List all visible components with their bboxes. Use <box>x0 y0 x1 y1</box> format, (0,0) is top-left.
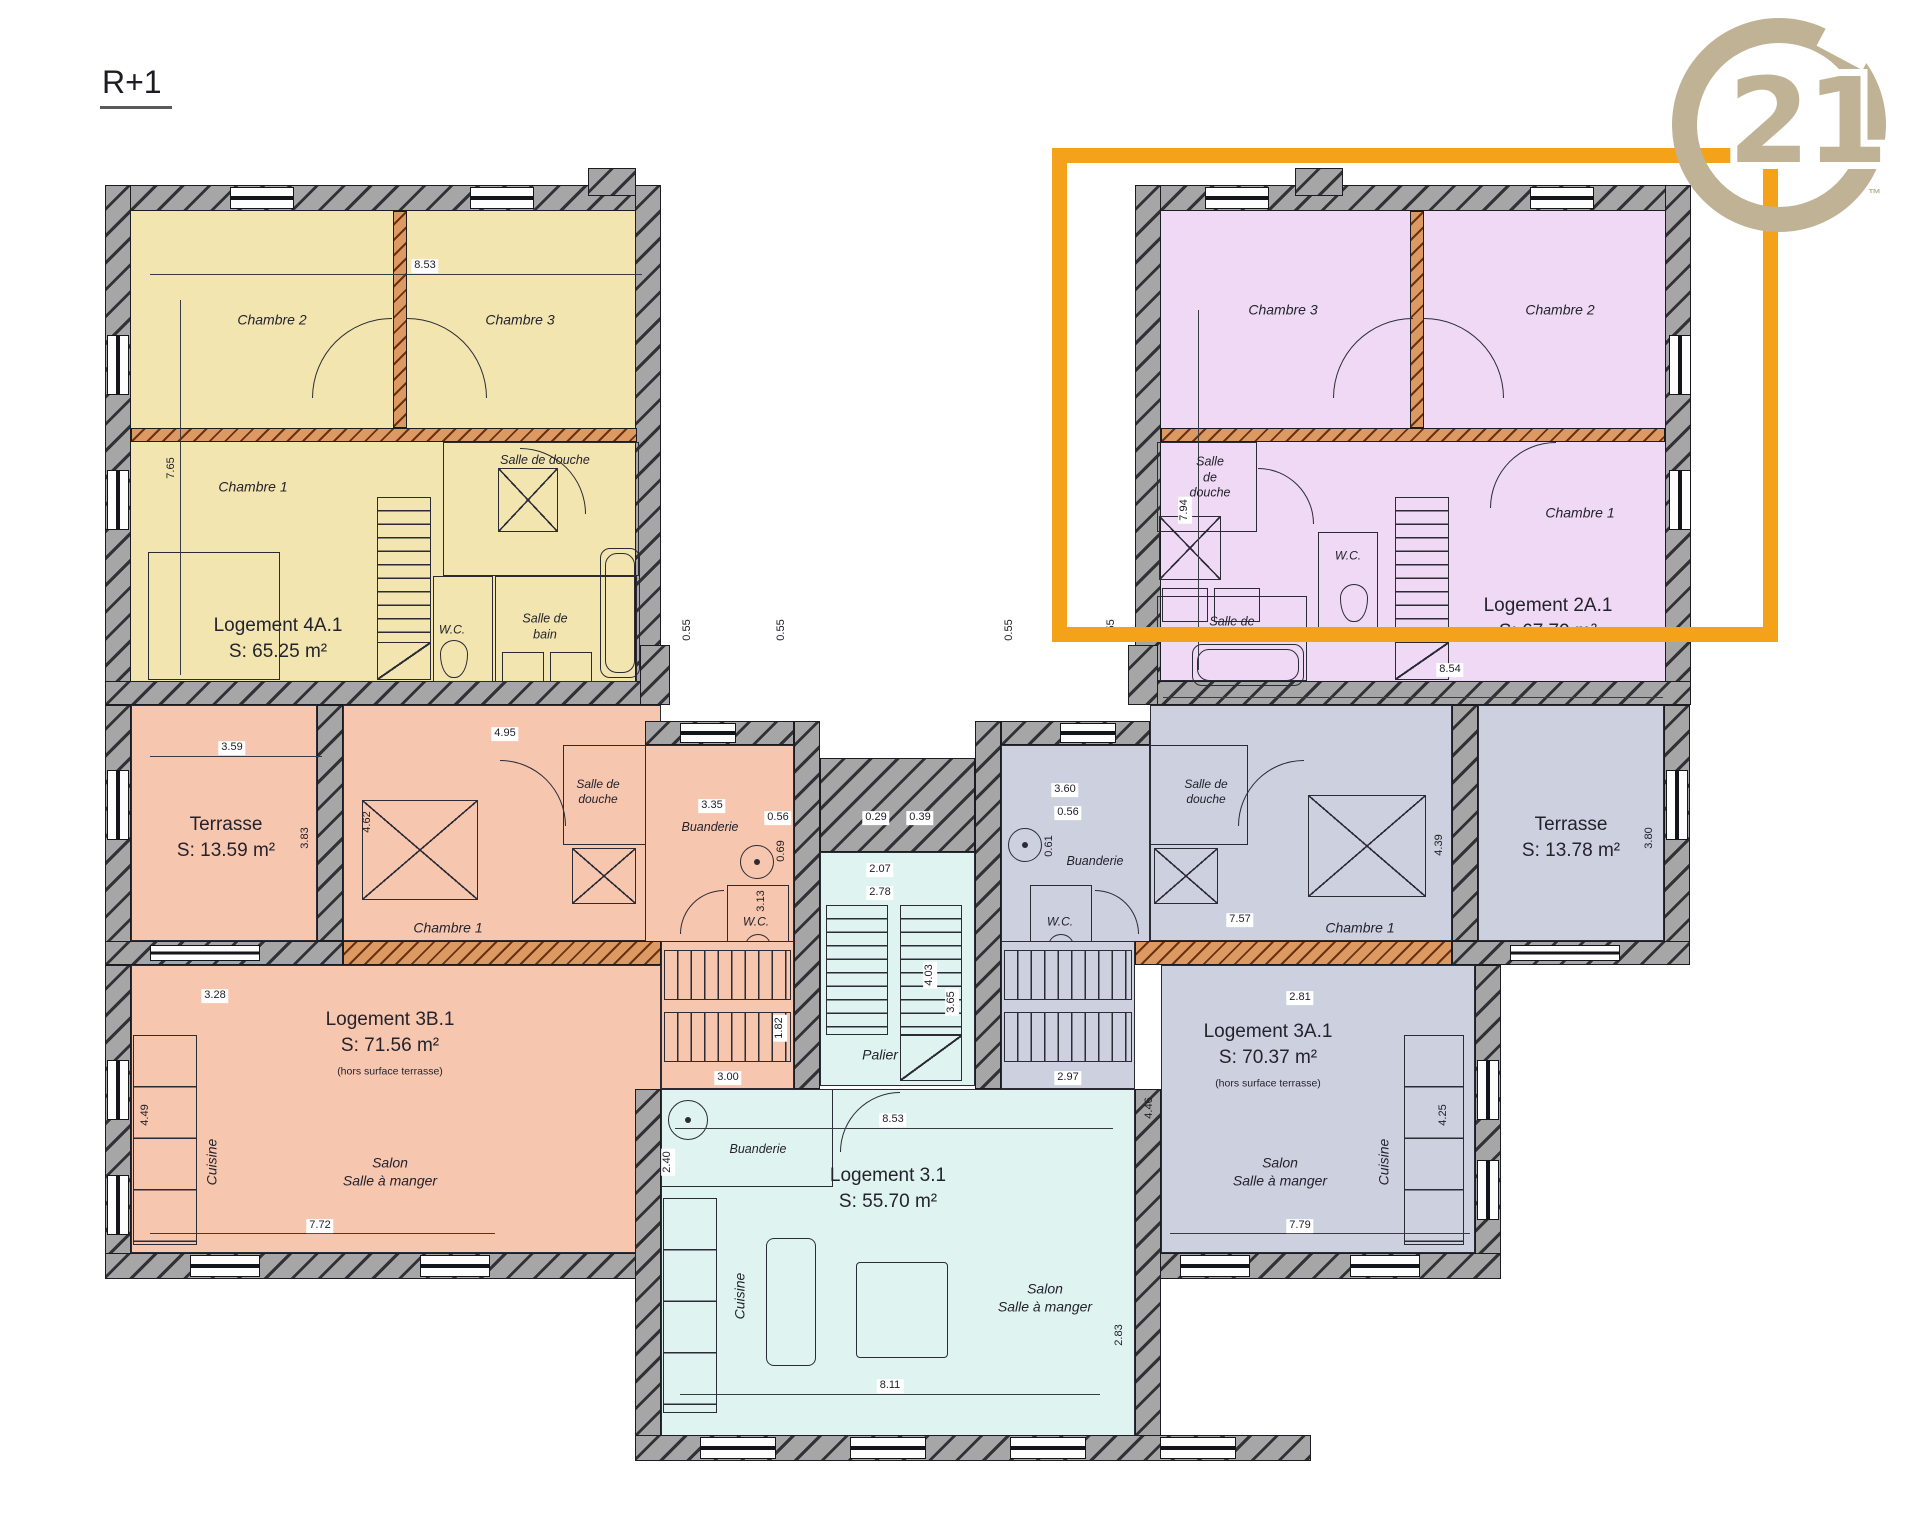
dimension: 8.11 <box>877 1379 904 1393</box>
washing-machine <box>1008 828 1042 862</box>
window <box>470 187 534 209</box>
room-label: Chambre 1 <box>413 919 482 937</box>
window <box>1477 1160 1499 1220</box>
dim-line <box>150 756 322 757</box>
staircase-fan <box>900 1035 962 1081</box>
staircase <box>1004 1012 1132 1062</box>
room-label: W.C. <box>439 623 465 638</box>
window <box>107 770 129 840</box>
dimension: 0.61 <box>1043 835 1057 856</box>
room-label: Cuisine <box>731 1273 749 1320</box>
dim-line <box>150 1233 495 1234</box>
dimension: 4.39 <box>1433 834 1447 855</box>
dimension: 2.40 <box>661 1148 675 1175</box>
window <box>1180 1255 1250 1277</box>
apartment-area: S: 65.25 m² <box>229 640 327 664</box>
dim-line <box>1163 697 1663 698</box>
wall <box>105 185 661 211</box>
room-label: Palier <box>862 1046 898 1064</box>
staircase <box>664 1012 791 1062</box>
staircase <box>377 497 431 643</box>
window <box>190 1255 260 1277</box>
room-label: Salon Salle à manger <box>343 1155 437 1190</box>
dim-line <box>680 1394 1100 1395</box>
dimension: 3.00 <box>714 1071 741 1085</box>
wall <box>1475 965 1501 1279</box>
dimension: 0.55 <box>775 619 789 640</box>
highlight-box-2a1 <box>1052 148 1778 642</box>
wall <box>105 1253 661 1279</box>
window <box>107 335 129 395</box>
apartment-area: S: 55.70 m² <box>839 1190 937 1214</box>
dimension: 2.81 <box>1286 991 1313 1005</box>
window <box>1666 770 1688 840</box>
kitchen-counter <box>1404 1035 1464 1245</box>
dim-line <box>150 274 642 275</box>
dimension: 0.56 <box>1054 806 1081 820</box>
wall <box>1452 705 1478 941</box>
logo-trademark: ™ <box>1868 186 1881 201</box>
dimension: 3.83 <box>299 827 313 848</box>
dimension: 3.60 <box>1051 783 1078 797</box>
window <box>850 1437 926 1459</box>
room-label: W.C. <box>1047 915 1073 930</box>
room-label: W.C. <box>743 915 769 930</box>
staircase <box>826 905 888 1035</box>
room-label: Buanderie <box>682 820 739 836</box>
dimension: 4.03 <box>923 961 937 988</box>
staircase-fan <box>377 642 431 680</box>
apartment-title: Logement 4A.1 <box>214 614 343 638</box>
terrasse-title: Terrasse <box>190 813 263 837</box>
dimension: 3.59 <box>218 741 245 755</box>
apartment-note: (hors surface terrasse) <box>337 1065 443 1078</box>
floor-label: R+1 <box>100 64 172 109</box>
entrance-wall-block <box>820 758 975 852</box>
dimension: 4.62 <box>361 811 375 832</box>
shower-tray <box>572 848 636 904</box>
washing-machine <box>740 845 774 879</box>
dimension: 2.83 <box>1113 1324 1127 1345</box>
room-label: Chambre 1 <box>218 478 287 496</box>
wall <box>635 1089 661 1461</box>
wall <box>105 185 131 705</box>
apartment-area: S: 70.37 m² <box>1219 1046 1317 1070</box>
dimension: 7.72 <box>306 1219 333 1233</box>
window <box>107 470 129 530</box>
window <box>1350 1255 1420 1277</box>
wall <box>1128 645 1158 705</box>
window <box>1477 1060 1499 1120</box>
wall <box>1135 1089 1161 1461</box>
shower-tray <box>1154 848 1218 904</box>
dimension: 4.46 <box>1143 1097 1157 1118</box>
dimension: 3.35 <box>698 799 725 813</box>
room-label: Chambre 3 <box>485 311 554 329</box>
bathtub <box>1192 644 1304 686</box>
wall <box>794 721 820 1089</box>
window <box>1010 1437 1086 1459</box>
wall <box>105 681 661 705</box>
dimension: 3.28 <box>201 989 228 1003</box>
dimension: 1.82 <box>773 1014 787 1041</box>
dimension: 4.25 <box>1437 1104 1451 1125</box>
dimension: 8.53 <box>411 259 438 273</box>
floor-plan-canvas: R+1 Chambre 2 Chambre 3 Chambre 1 Salle … <box>0 0 1920 1519</box>
wall <box>975 721 1001 1089</box>
terrasse-area: S: 13.78 m² <box>1522 839 1620 863</box>
dimension: 7.79 <box>1286 1219 1313 1233</box>
dim-line <box>675 1128 1113 1129</box>
partition-wall <box>343 941 661 965</box>
staircase <box>664 950 791 1000</box>
staircase <box>1004 950 1132 1000</box>
room-label: Salle de douche <box>1184 777 1227 807</box>
dimension: 2.97 <box>1054 1071 1081 1085</box>
window <box>1160 1437 1236 1459</box>
dimension: 8.54 <box>1436 663 1463 677</box>
dimension: 4.95 <box>491 727 518 741</box>
room-label: Salle de bain <box>522 611 567 642</box>
wall <box>640 645 670 705</box>
dimension: 8.53 <box>879 1113 906 1127</box>
dimension: 2.07 <box>866 863 893 877</box>
window <box>700 1437 776 1459</box>
chimney-stub <box>588 168 636 196</box>
terrasse-area: S: 13.59 m² <box>177 839 275 863</box>
bed <box>362 800 478 900</box>
sink <box>550 652 592 682</box>
kitchen-counter <box>133 1035 197 1245</box>
partition-wall <box>1135 941 1452 965</box>
dimension: 0.29 <box>862 811 889 825</box>
window <box>107 1060 129 1120</box>
dimension: 7.65 <box>165 457 179 478</box>
wall <box>317 705 343 941</box>
room-label: Salle de douche <box>576 777 619 807</box>
dining-table <box>856 1262 948 1358</box>
dim-line <box>180 300 181 675</box>
window <box>1060 723 1116 743</box>
bathtub <box>600 548 640 678</box>
room-label: Cuisine <box>1375 1139 1393 1186</box>
window <box>107 1175 129 1235</box>
room-label: Chambre 2 <box>237 311 306 329</box>
room-label: Chambre 1 <box>1325 919 1394 937</box>
dimension: 0.69 <box>775 840 789 861</box>
washing-machine <box>668 1100 708 1140</box>
sink <box>502 652 544 682</box>
window <box>150 945 260 961</box>
logo-number: 21 <box>1728 52 1884 190</box>
room-label: Salon Salle à manger <box>1233 1155 1327 1190</box>
apartment-title: Logement 3B.1 <box>326 1008 455 1032</box>
dimension: 0.55 <box>1003 619 1017 640</box>
apartment-title: Logement 3A.1 <box>1204 1020 1333 1044</box>
partition-wall <box>131 428 637 442</box>
dimension: 7.57 <box>1226 913 1253 927</box>
dimension: 2.78 <box>866 886 893 900</box>
century21-logo: 21 21 ™ <box>1672 18 1900 246</box>
window <box>420 1255 490 1277</box>
dimension: 3.65 <box>945 988 959 1015</box>
dimension: 0.56 <box>764 811 791 825</box>
room-label: Salle de douche <box>500 453 590 469</box>
kitchen-counter <box>663 1198 717 1413</box>
room-label: Salon Salle à manger <box>998 1281 1092 1316</box>
partition-wall <box>393 211 407 428</box>
dimension: 0.55 <box>681 619 695 640</box>
room-label: Cuisine <box>203 1139 221 1186</box>
apartment-area: S: 71.56 m² <box>341 1034 439 1058</box>
room-label: Buanderie <box>1067 854 1124 870</box>
window <box>230 187 294 209</box>
apartment-note: (hors surface terrasse) <box>1215 1077 1321 1090</box>
sofa <box>766 1238 816 1366</box>
bed <box>1308 795 1426 897</box>
dim-line <box>1170 1233 1470 1234</box>
dimension: 3.80 <box>1643 827 1657 848</box>
room-label: Buanderie <box>730 1142 787 1158</box>
dimension: 0.39 <box>906 811 933 825</box>
terrasse-title: Terrasse <box>1535 813 1608 837</box>
dimension: 4.49 <box>139 1104 153 1125</box>
window <box>1510 945 1620 961</box>
dimension: 3.13 <box>755 890 769 911</box>
window <box>680 723 736 743</box>
apartment-title: Logement 3.1 <box>830 1164 946 1188</box>
